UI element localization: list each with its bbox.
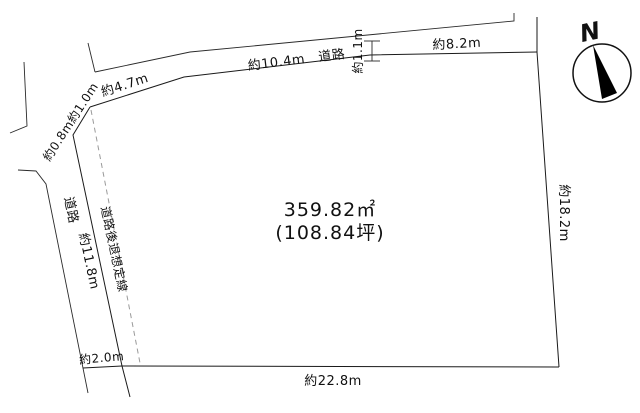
area-tsubo: (108.84坪) [275, 222, 384, 244]
dimension-west: 約11.8m [75, 232, 102, 291]
compass-north-label: N [577, 16, 603, 48]
dimension-east: 約18.2m [556, 184, 571, 242]
survey-drawing: N 359.82㎡ (108.84坪) 約4.7m 約10.4m 道路 約1.1… [0, 0, 640, 413]
dimension-north-east: 約8.2m [432, 36, 482, 54]
dimension-northwest-corner: 約0.8m約1.0m [39, 79, 101, 163]
compass-needle-icon [593, 45, 617, 99]
area-square-meters: 359.82㎡ [284, 198, 376, 221]
dimension-south: 約22.8m [304, 374, 362, 389]
dimension-southwest-road-width: 約2.0m [78, 348, 124, 367]
northwest-intersection-corner-line [10, 62, 27, 133]
dimension-north-main-road: 約10.4m 道路 [247, 46, 346, 74]
setback-line-label: 道路後退想定線 [98, 205, 131, 294]
parcel-east-boundary-line [537, 17, 559, 367]
land-plot-diagram: N 359.82㎡ (108.84坪) 約4.7m 約10.4m 道路 約1.1… [0, 0, 640, 413]
dimension-north-jog-width: 約1.1m [350, 28, 365, 73]
north-neighbor-spur-line [88, 43, 95, 72]
west-road-label: 道路 [60, 195, 81, 225]
north-jog-dimension-ticks [364, 41, 380, 61]
compass: N [573, 16, 631, 102]
parcel-south-boundary-line [83, 366, 559, 368]
